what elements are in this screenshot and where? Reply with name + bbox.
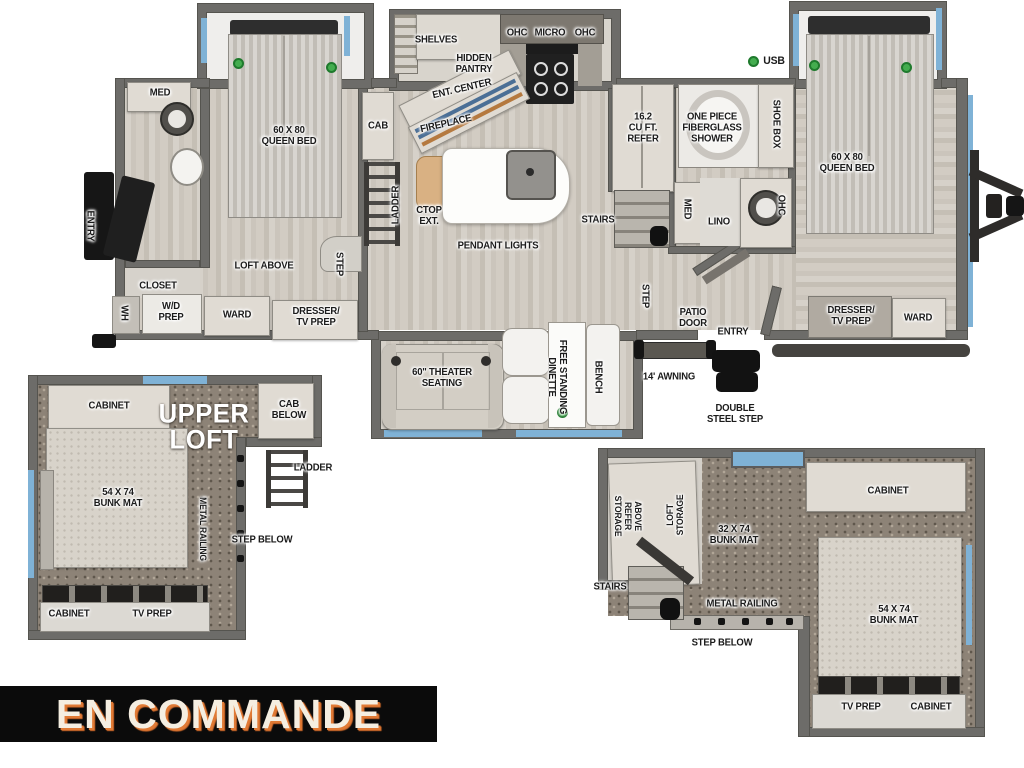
wall — [636, 330, 698, 340]
bed-seam — [868, 36, 870, 156]
label-med: MED — [682, 199, 693, 220]
wall — [956, 78, 968, 340]
label-ohc: OHC — [776, 195, 787, 216]
awning-cap — [634, 340, 644, 359]
label-ohc: OHC — [507, 28, 528, 39]
queen-bed-right — [806, 34, 934, 234]
railing-band — [670, 615, 804, 630]
roof-vent — [731, 450, 805, 468]
dinette-chair — [502, 376, 550, 424]
label-54-x-74: 54 X 74 BUNK MAT — [94, 487, 142, 509]
railing-post — [237, 480, 244, 487]
window-accent — [966, 545, 972, 645]
label-cabinet: CABINET — [89, 401, 130, 412]
label-cabinet: CABINET — [911, 702, 952, 713]
railing-post — [718, 618, 725, 625]
railing-post — [237, 455, 244, 462]
lino-floor — [700, 178, 740, 246]
label-bench: BENCH — [593, 361, 604, 394]
stove — [526, 54, 574, 104]
window-accent — [143, 376, 207, 384]
label-loft-above: LOFT ABOVE — [235, 261, 294, 272]
hitch-coupler — [1006, 196, 1024, 216]
label-shoe-box: SHOE BOX — [771, 100, 782, 149]
label-above: ABOVE REFER STORAGE — [612, 496, 642, 537]
sofa-armrest — [488, 344, 502, 428]
wall — [975, 448, 985, 737]
label-step-below: STEP BELOW — [232, 535, 293, 546]
railing-post — [766, 618, 773, 625]
wall — [798, 616, 810, 737]
label-loft: LOFT STORAGE — [666, 495, 686, 536]
label-pendant-lights: PENDANT LIGHTS — [458, 241, 539, 252]
label-dresser: DRESSER/ TV PREP — [292, 306, 339, 328]
label-hidden: HIDDEN PANTRY — [456, 53, 493, 75]
wall — [200, 88, 210, 268]
label-60-theater: 60" THEATER SEATING — [412, 367, 472, 389]
faucet — [526, 168, 534, 176]
label-entry: ENTRY — [85, 211, 96, 242]
window-accent — [384, 430, 482, 437]
banner-text: EN COMMANDE — [56, 691, 381, 738]
label-14-awning: 14' AWNING — [643, 372, 695, 383]
window-accent — [201, 18, 207, 63]
label-step: STEP — [640, 284, 651, 308]
label-dresser: DRESSER/ TV PREP — [827, 305, 874, 327]
label-one-piece: ONE PIECE FIBERGLASS SHOWER — [682, 112, 741, 145]
label-metal-railing: METAL RAILING — [706, 599, 777, 610]
double-steel-step — [716, 372, 758, 392]
floorplan-canvas: EN COMMANDE MEDENTRYCLOSETWHW/D PREP60 X… — [0, 0, 1024, 768]
label-ward: WARD — [904, 313, 932, 324]
label-lino: LINO — [708, 217, 730, 228]
queen-bed-right-headboard — [808, 16, 930, 34]
label-closet: CLOSET — [139, 281, 176, 292]
wall — [125, 260, 200, 268]
label-cabinet: CABINET — [49, 609, 90, 620]
led-indicator-icon — [901, 62, 912, 73]
label-free-standing: FREE STANDING DINETTE — [546, 340, 568, 414]
label-step-below: STEP BELOW — [692, 638, 753, 649]
led-indicator-icon — [326, 62, 337, 73]
label-16-2: 16.2 CU FT. REFER — [627, 112, 658, 145]
label-ward: WARD — [223, 310, 251, 321]
hitch-jack — [986, 194, 1002, 218]
label-wh: WH — [119, 305, 130, 320]
label-shelves: SHELVES — [415, 35, 457, 46]
railing-post — [694, 618, 701, 625]
burner — [554, 82, 568, 96]
label-upper: UPPER LOFT — [159, 401, 250, 452]
cupholder — [481, 356, 491, 366]
window-accent — [344, 16, 350, 56]
label-60-x-80: 60 X 80 QUEEN BED — [262, 125, 317, 147]
chassis-band — [772, 344, 970, 357]
label-step: STEP — [334, 252, 345, 276]
window-accent — [28, 470, 34, 578]
label-med: MED — [150, 88, 171, 99]
burner — [554, 62, 568, 76]
label-cabinet: CABINET — [868, 486, 909, 497]
window-accent — [516, 430, 622, 437]
tv-slot-row — [818, 676, 960, 696]
label-w-d: W/D PREP — [158, 301, 183, 323]
burner — [534, 62, 548, 76]
label-cab: CAB BELOW — [272, 399, 306, 421]
bath-sink — [160, 102, 194, 136]
range-hood — [518, 44, 580, 54]
status-banner: EN COMMANDE — [0, 686, 437, 742]
label-54-x-74: 54 X 74 BUNK MAT — [870, 604, 918, 626]
label-ladder: LADDER — [294, 463, 332, 474]
wall — [371, 78, 397, 88]
label-cab: CAB — [368, 121, 388, 132]
awning-bar — [638, 342, 716, 359]
loft-ladder — [266, 450, 308, 508]
led-indicator-icon — [748, 56, 759, 67]
railing-post — [237, 505, 244, 512]
railing-post — [237, 555, 244, 562]
label-stairs: STAIRS — [594, 582, 627, 593]
label-ladder: LADDER — [391, 186, 402, 224]
double-steel-step — [712, 350, 760, 372]
label-ctop: CTOP EXT. — [416, 205, 441, 227]
railing-post — [786, 618, 793, 625]
led-indicator-icon — [233, 58, 244, 69]
side-panel — [40, 470, 54, 570]
cupholder — [391, 356, 401, 366]
led-indicator-icon — [809, 60, 820, 71]
label-double: DOUBLE STEEL STEP — [707, 403, 763, 425]
label-entry: ENTRY — [718, 327, 749, 338]
dinette-chair — [502, 328, 550, 376]
label-32-x-74: 32 X 74 BUNK MAT — [710, 524, 758, 546]
railing-post — [742, 618, 749, 625]
label-patio: PATIO DOOR — [679, 307, 707, 329]
label-tv-prep: TV PREP — [132, 609, 171, 620]
burner — [534, 82, 548, 96]
hull-corner-cap — [92, 334, 116, 348]
label-metal-railing: METAL RAILING — [197, 497, 207, 561]
label-stairs: STAIRS — [582, 215, 615, 226]
label-micro: MICRO — [535, 28, 566, 39]
label-usb: USB — [763, 55, 784, 67]
toilet — [170, 148, 204, 186]
stair-railing — [660, 598, 680, 620]
window-accent — [793, 14, 799, 66]
counter — [578, 44, 602, 86]
stair-railing — [650, 226, 668, 246]
label-tv-prep: TV PREP — [841, 702, 880, 713]
label-60-x-80: 60 X 80 QUEEN BED — [820, 152, 875, 174]
window-accent — [936, 8, 942, 70]
wall — [598, 448, 608, 590]
label-ohc: OHC — [575, 28, 596, 39]
